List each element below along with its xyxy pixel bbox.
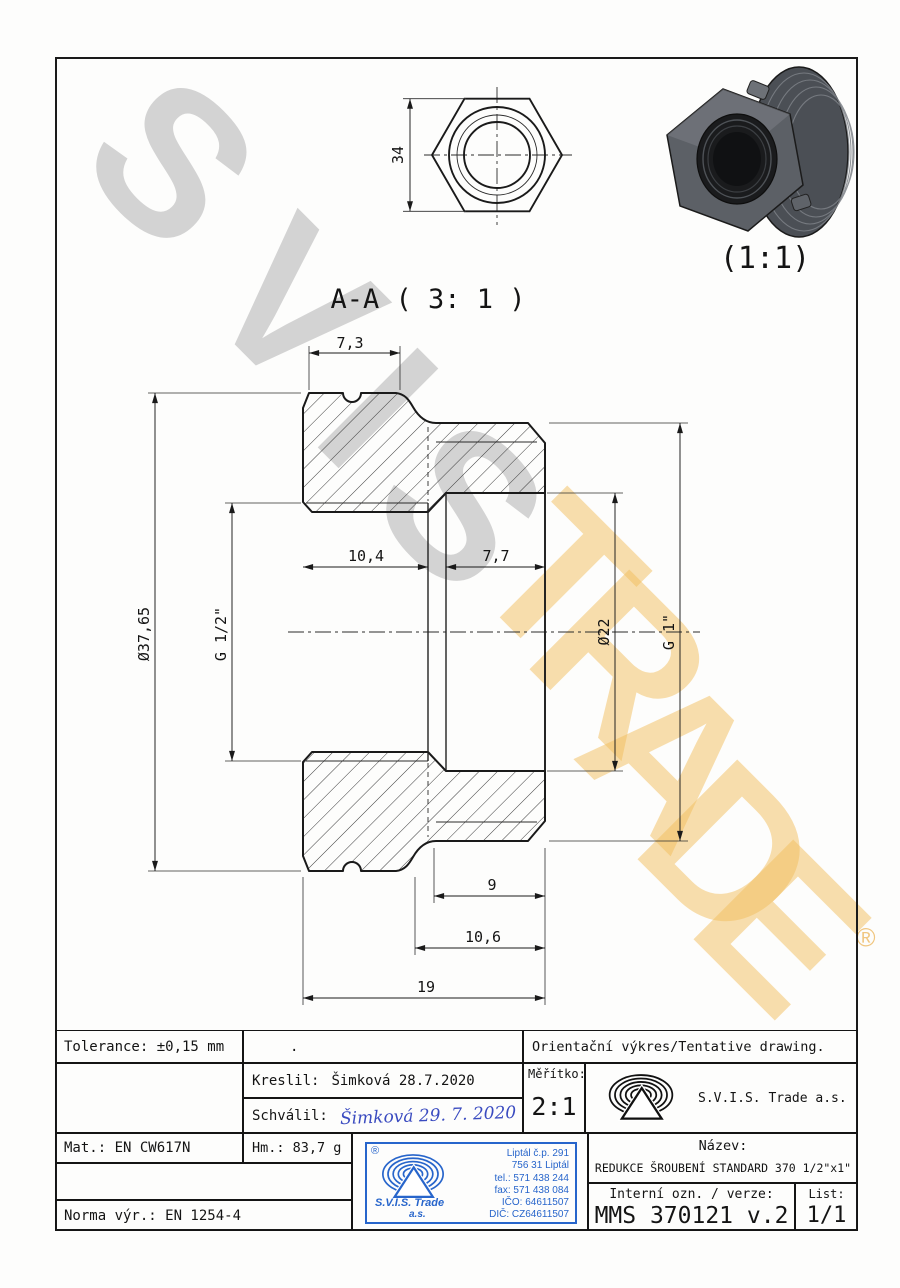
dim-thread-length: 9 bbox=[487, 876, 496, 894]
list-value: 1/1 bbox=[796, 1201, 857, 1230]
dim-right-bore-depth: 7,7 bbox=[482, 547, 509, 565]
stamp-cell: ® S.V.I.S. Trade a.s. Liptál č.p. 291 75… bbox=[352, 1133, 588, 1231]
weight-cell: Hm.: 83,7 g bbox=[243, 1133, 352, 1163]
nazev-label: Název: bbox=[589, 1134, 857, 1154]
stamp-address: Liptál č.p. 291 756 31 Liptál tel.: 571 … bbox=[489, 1148, 569, 1222]
material-text: Mat.: EN CW617N bbox=[64, 1140, 190, 1156]
dim-outer-diameter: Ø37,65 bbox=[135, 607, 153, 661]
company-cell: S.V.I.S. Trade a.s. bbox=[585, 1063, 858, 1133]
kreslil-value: Šimková 28.7.2020 bbox=[331, 1073, 474, 1089]
interni-value: MMS 370121 v.2 bbox=[589, 1202, 794, 1230]
iso-lug bbox=[746, 80, 770, 100]
dim-left-bore-depth: 10,4 bbox=[348, 547, 384, 565]
svis-logo-icon bbox=[371, 1152, 455, 1202]
empty-cell bbox=[55, 1063, 243, 1133]
kreslil-cell: Kreslil: Šimková 28.7.2020 bbox=[243, 1063, 523, 1098]
schvalil-signature: Šimková 29. 7. 2020 bbox=[340, 1102, 517, 1128]
dim-thread-left: G 1/2" bbox=[212, 607, 230, 661]
stamp-company-line2: a.s. bbox=[409, 1209, 426, 1220]
section-view: A-A ( 3: 1 ) 7,3 bbox=[135, 284, 700, 1005]
list-cell: List: 1/1 bbox=[795, 1183, 858, 1231]
drawing-views: 34 (1:1) A-A ( 3: 1 ) bbox=[55, 57, 858, 1032]
stamp-address-line: tel.: 571 438 244 bbox=[489, 1173, 569, 1185]
stamp-company-line1: S.V.I.S. Trade bbox=[375, 1197, 444, 1209]
meritko-cell: Měřítko: 2:1 bbox=[523, 1063, 585, 1133]
material-cell: Mat.: EN CW617N bbox=[55, 1133, 243, 1163]
schvalil-label: Schválil: bbox=[252, 1108, 328, 1124]
top-view: 34 bbox=[389, 87, 572, 225]
dim-body-length: 10,6 bbox=[465, 928, 501, 946]
section-cut-lower bbox=[303, 752, 545, 871]
empty-cell: . bbox=[243, 1030, 523, 1063]
norma-cell: Norma výr.: EN 1254-4 bbox=[55, 1200, 352, 1231]
company-stamp: ® S.V.I.S. Trade a.s. Liptál č.p. 291 75… bbox=[365, 1142, 577, 1224]
iso-view: (1:1) bbox=[667, 67, 854, 276]
interni-cell: Interní ozn. / verze: MMS 370121 v.2 bbox=[588, 1183, 795, 1231]
section-cut-upper bbox=[303, 393, 545, 512]
stamp-address-line: fax: 571 438 084 bbox=[489, 1185, 569, 1197]
weight-text: Hm.: 83,7 g bbox=[252, 1140, 341, 1156]
norma-text: Norma výr.: EN 1254-4 bbox=[64, 1208, 241, 1224]
stray-dot: . bbox=[290, 1039, 298, 1055]
list-label: List: bbox=[796, 1184, 857, 1201]
orientation-note-cell: Orientační výkres/Tentative drawing. bbox=[523, 1030, 858, 1063]
schvalil-cell: Schválil: Šimková 29. 7. 2020 bbox=[243, 1098, 523, 1133]
title-block: Tolerance: ±0,15 mm . Orientační výkres/… bbox=[55, 1030, 858, 1231]
dim-flange-width: 7,3 bbox=[336, 334, 363, 352]
stamp-address-line: 756 31 Liptál bbox=[489, 1160, 569, 1172]
meritko-label: Měřítko: bbox=[524, 1064, 584, 1081]
stamp-address-line: IČO: 64611507 bbox=[489, 1197, 569, 1209]
meritko-value: 2:1 bbox=[524, 1081, 584, 1132]
tolerance-cell: Tolerance: ±0,15 mm bbox=[55, 1030, 243, 1063]
interni-label: Interní ozn. / verze: bbox=[589, 1184, 794, 1202]
nazev-value: REDUKCE ŠROUBENÍ STANDARD 370 1/2"x1" bbox=[589, 1154, 857, 1182]
kreslil-label: Kreslil: bbox=[252, 1073, 319, 1089]
drawing-sheet: S V I S T R A D E ® bbox=[0, 0, 900, 1288]
empty-cell bbox=[55, 1163, 352, 1200]
dim-thread-right: G 1" bbox=[660, 614, 678, 650]
dim-across-flats: 34 bbox=[389, 146, 407, 164]
iso-scale-label: (1:1) bbox=[720, 241, 810, 276]
dim-tube-diameter: Ø22 bbox=[595, 618, 613, 645]
company-name: S.V.I.S. Trade a.s. bbox=[698, 1091, 847, 1106]
tolerance-text: Tolerance: ±0,15 mm bbox=[64, 1039, 224, 1055]
stamp-address-line: DIČ: CZ64611507 bbox=[489, 1209, 569, 1221]
section-label: A-A ( 3: 1 ) bbox=[330, 284, 525, 315]
registered-mark-icon: ® bbox=[856, 923, 875, 954]
svis-logo-icon bbox=[602, 1072, 680, 1124]
stamp-address-line: Liptál č.p. 291 bbox=[489, 1148, 569, 1160]
nazev-cell: Název: REDUKCE ŠROUBENÍ STANDARD 370 1/2… bbox=[588, 1133, 858, 1183]
dim-total-length: 19 bbox=[417, 978, 435, 996]
orientation-note: Orientační výkres/Tentative drawing. bbox=[532, 1039, 825, 1055]
